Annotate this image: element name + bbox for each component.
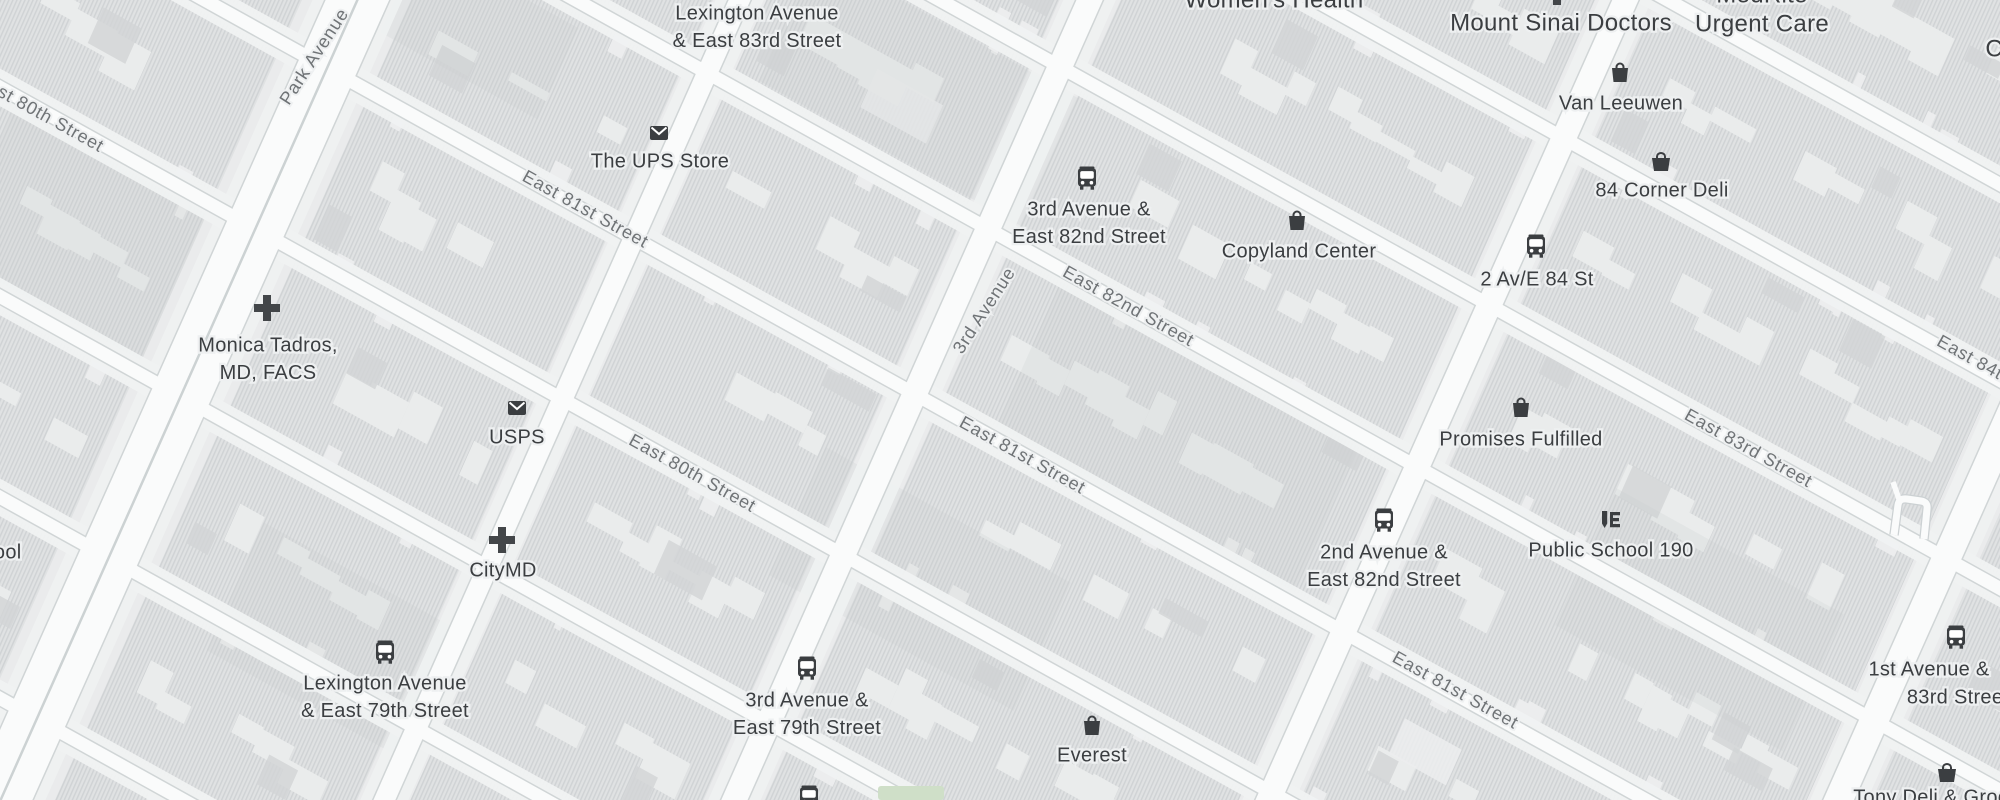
svg-text:1st Avenue &: 1st Avenue & <box>1868 658 1989 680</box>
svg-text:MD, FACS: MD, FACS <box>220 362 317 384</box>
svg-text:Promises Fulfilled: Promises Fulfilled <box>1439 428 1602 450</box>
svg-text:3rd Avenue &: 3rd Avenue & <box>745 689 869 711</box>
svg-text:Tony Deli & Grocery: Tony Deli & Grocery <box>1853 786 2000 800</box>
svg-text:Camp: Camp <box>1985 35 2000 62</box>
svg-text:3rd Avenue &: 3rd Avenue & <box>1027 198 1151 220</box>
svg-text:MedRite: MedRite <box>1716 0 1807 8</box>
svg-text:East 82nd Street: East 82nd Street <box>1307 569 1461 591</box>
svg-text:Lexington Avenue: Lexington Avenue <box>303 672 466 694</box>
svg-text:CityMD: CityMD <box>469 559 536 581</box>
svg-text:The UPS Store: The UPS Store <box>591 150 729 172</box>
svg-text:East 82nd Street: East 82nd Street <box>1012 226 1166 248</box>
svg-text:Urgent Care: Urgent Care <box>1695 10 1829 37</box>
svg-text:Mount Sinai Doctors: Mount Sinai Doctors <box>1450 9 1672 36</box>
svg-text:Lexington Avenue: Lexington Avenue <box>675 2 838 24</box>
svg-text:& East 79th Street: & East 79th Street <box>301 700 469 722</box>
svg-text:Public School 190: Public School 190 <box>1528 539 1693 561</box>
svg-text:Women's Health: Women's Health <box>1184 0 1363 13</box>
svg-text:84 Corner Deli: 84 Corner Deli <box>1595 179 1728 201</box>
svg-text:Copyland Center: Copyland Center <box>1222 240 1377 262</box>
svg-text:USPS: USPS <box>489 426 545 448</box>
svg-text:2nd Avenue &: 2nd Avenue & <box>1320 541 1448 563</box>
svg-text:83rd Street: 83rd Street <box>1907 686 2000 708</box>
svg-text:Everest: Everest <box>1057 744 1127 766</box>
svg-text:East 79th Street: East 79th Street <box>733 717 881 739</box>
svg-text:& East 83rd Street: & East 83rd Street <box>673 30 842 52</box>
svg-text:Monica Tadros,: Monica Tadros, <box>198 334 337 356</box>
svg-text:School: School <box>0 541 21 563</box>
svg-text:Van Leeuwen: Van Leeuwen <box>1559 92 1683 114</box>
svg-text:2 Av/E 84 St: 2 Av/E 84 St <box>1480 268 1593 290</box>
